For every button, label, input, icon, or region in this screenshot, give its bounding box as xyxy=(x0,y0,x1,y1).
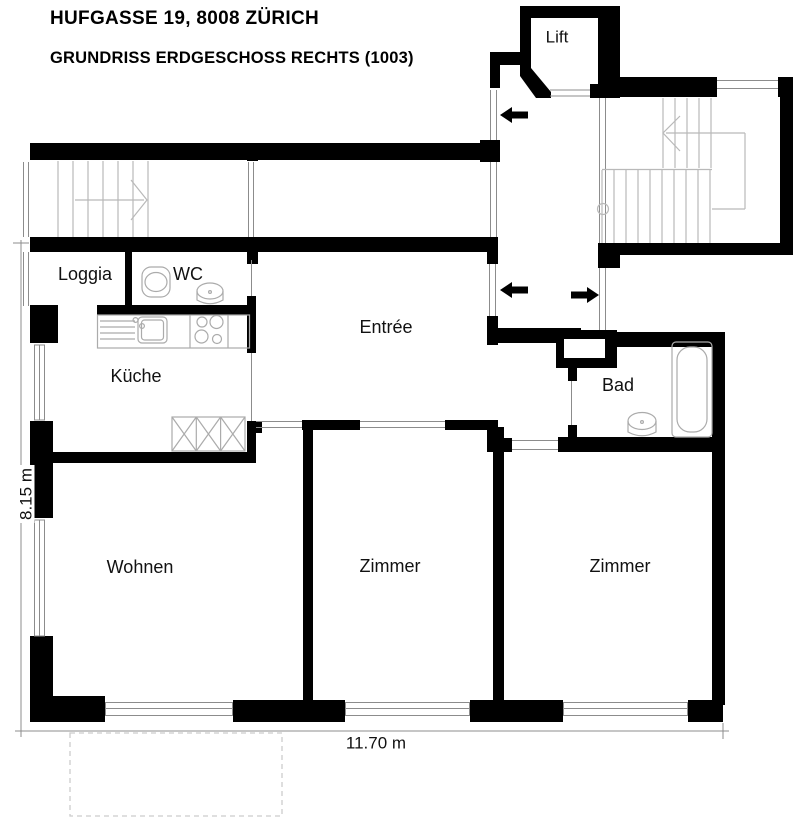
shaft-opening xyxy=(564,339,605,358)
kitchen-drainboard xyxy=(100,321,135,339)
wc-toilet-outline xyxy=(142,267,170,297)
stove-burner-2 xyxy=(210,316,223,329)
wall-main-top-right xyxy=(480,140,500,162)
wall-pillar-mid-1 xyxy=(247,237,258,264)
kitchen-cupboard-x xyxy=(172,417,245,451)
door-building-entrance xyxy=(491,90,497,140)
loggia-open-edge xyxy=(24,252,29,306)
room-label-entree: Entrée xyxy=(359,318,412,336)
wall-bottom-4 xyxy=(688,700,723,722)
door-lift xyxy=(550,90,590,96)
door-wohnen xyxy=(256,422,302,428)
arrow-left-icon xyxy=(500,282,528,298)
windows-and-doors xyxy=(24,81,779,716)
wall-lift-diagonal xyxy=(520,68,551,98)
walls xyxy=(30,6,793,722)
room-label-loggia: Loggia xyxy=(58,265,112,283)
kitchen-counter xyxy=(98,315,250,348)
room-label-lift: Lift xyxy=(546,29,569,46)
stove-burner-1 xyxy=(197,317,207,327)
wall-kueche-right-1 xyxy=(247,305,256,353)
wall-kueche-top xyxy=(97,305,250,315)
wall-bottom-2 xyxy=(233,700,345,722)
door-neighbor xyxy=(600,268,606,330)
wall-stairwell-pillar xyxy=(598,243,620,268)
wall-right-exterior-top xyxy=(780,77,793,255)
dimension-label-height: 8.15 m xyxy=(18,465,35,523)
bad-sink-drain xyxy=(641,421,644,424)
bathtub-inner xyxy=(677,347,707,432)
wall-stairwell-bottom xyxy=(598,243,793,255)
window-stair-left xyxy=(24,162,29,237)
page-title: HUFGASSE 19, 8008 ZÜRICH xyxy=(50,8,319,30)
wall-bottom-1 xyxy=(30,696,105,722)
kitchen-faucet-1 xyxy=(133,318,138,323)
stair-left-treads xyxy=(58,161,148,237)
wall-kueche-bottom xyxy=(48,452,253,463)
wall-bad-bottom xyxy=(558,437,725,452)
page-subtitle: GRUNDRISS ERDGESCHOSS RECHTS (1003) xyxy=(50,49,414,68)
wall-mid xyxy=(30,237,497,252)
floorplan-page: HUFGASSE 19, 8008 ZÜRICH GRUNDRISS ERDGE… xyxy=(0,0,800,821)
wall-left-pillar-1 xyxy=(30,305,58,343)
stair-right-lower-treads xyxy=(602,170,710,243)
door-zimmer-left xyxy=(360,422,445,428)
room-label-bad: Bad xyxy=(602,376,634,394)
stairs xyxy=(58,98,745,243)
stove-burner-3 xyxy=(195,330,208,343)
door-apartment-entrance xyxy=(490,264,496,316)
room-label-wohnen: Wohnen xyxy=(107,558,174,576)
stove-burner-4 xyxy=(213,335,222,344)
wall-pillar-mid-2 xyxy=(487,237,498,264)
wall-bottom-3 xyxy=(470,700,563,722)
wc-toilet-bowl xyxy=(145,273,167,292)
dimension-label-width: 11.70 m xyxy=(342,735,410,752)
wall-main-top xyxy=(30,143,497,160)
window-stairwell-top xyxy=(717,81,778,89)
door-zimmer-right xyxy=(512,441,558,450)
room-label-zimmer-right: Zimmer xyxy=(590,557,651,575)
wall-zimmer-zimmer-divider xyxy=(493,427,504,705)
wall-stairwell-top xyxy=(610,77,717,97)
room-label-wc: WC xyxy=(173,265,203,283)
arrow-left-icon xyxy=(500,107,528,123)
entrance-arrows xyxy=(500,107,599,303)
arrow-right-icon xyxy=(571,287,599,303)
wall-pillar-top xyxy=(247,143,258,161)
room-label-zimmer-left: Zimmer xyxy=(360,557,421,575)
wall-wohnen-zimmer-divider xyxy=(303,427,313,705)
wall-annex-stub-v xyxy=(490,52,500,88)
wall-bad-left-1 xyxy=(568,364,577,381)
wall-right-exterior-bottom xyxy=(712,332,725,705)
fixtures xyxy=(98,267,713,451)
kitchen-sink-inner xyxy=(142,320,164,340)
room-label-kueche: Küche xyxy=(110,367,161,385)
wall-bad-top xyxy=(610,332,725,347)
stair-left-direction-arrow xyxy=(75,180,147,220)
floorplan-drawing xyxy=(0,0,800,821)
wc-sink-drain xyxy=(209,291,212,294)
partition-stair-room xyxy=(249,162,254,237)
window-hall-room xyxy=(491,162,497,237)
terrace-dashed-outline xyxy=(70,733,282,816)
wall-loggia-wc-divider xyxy=(125,252,132,308)
